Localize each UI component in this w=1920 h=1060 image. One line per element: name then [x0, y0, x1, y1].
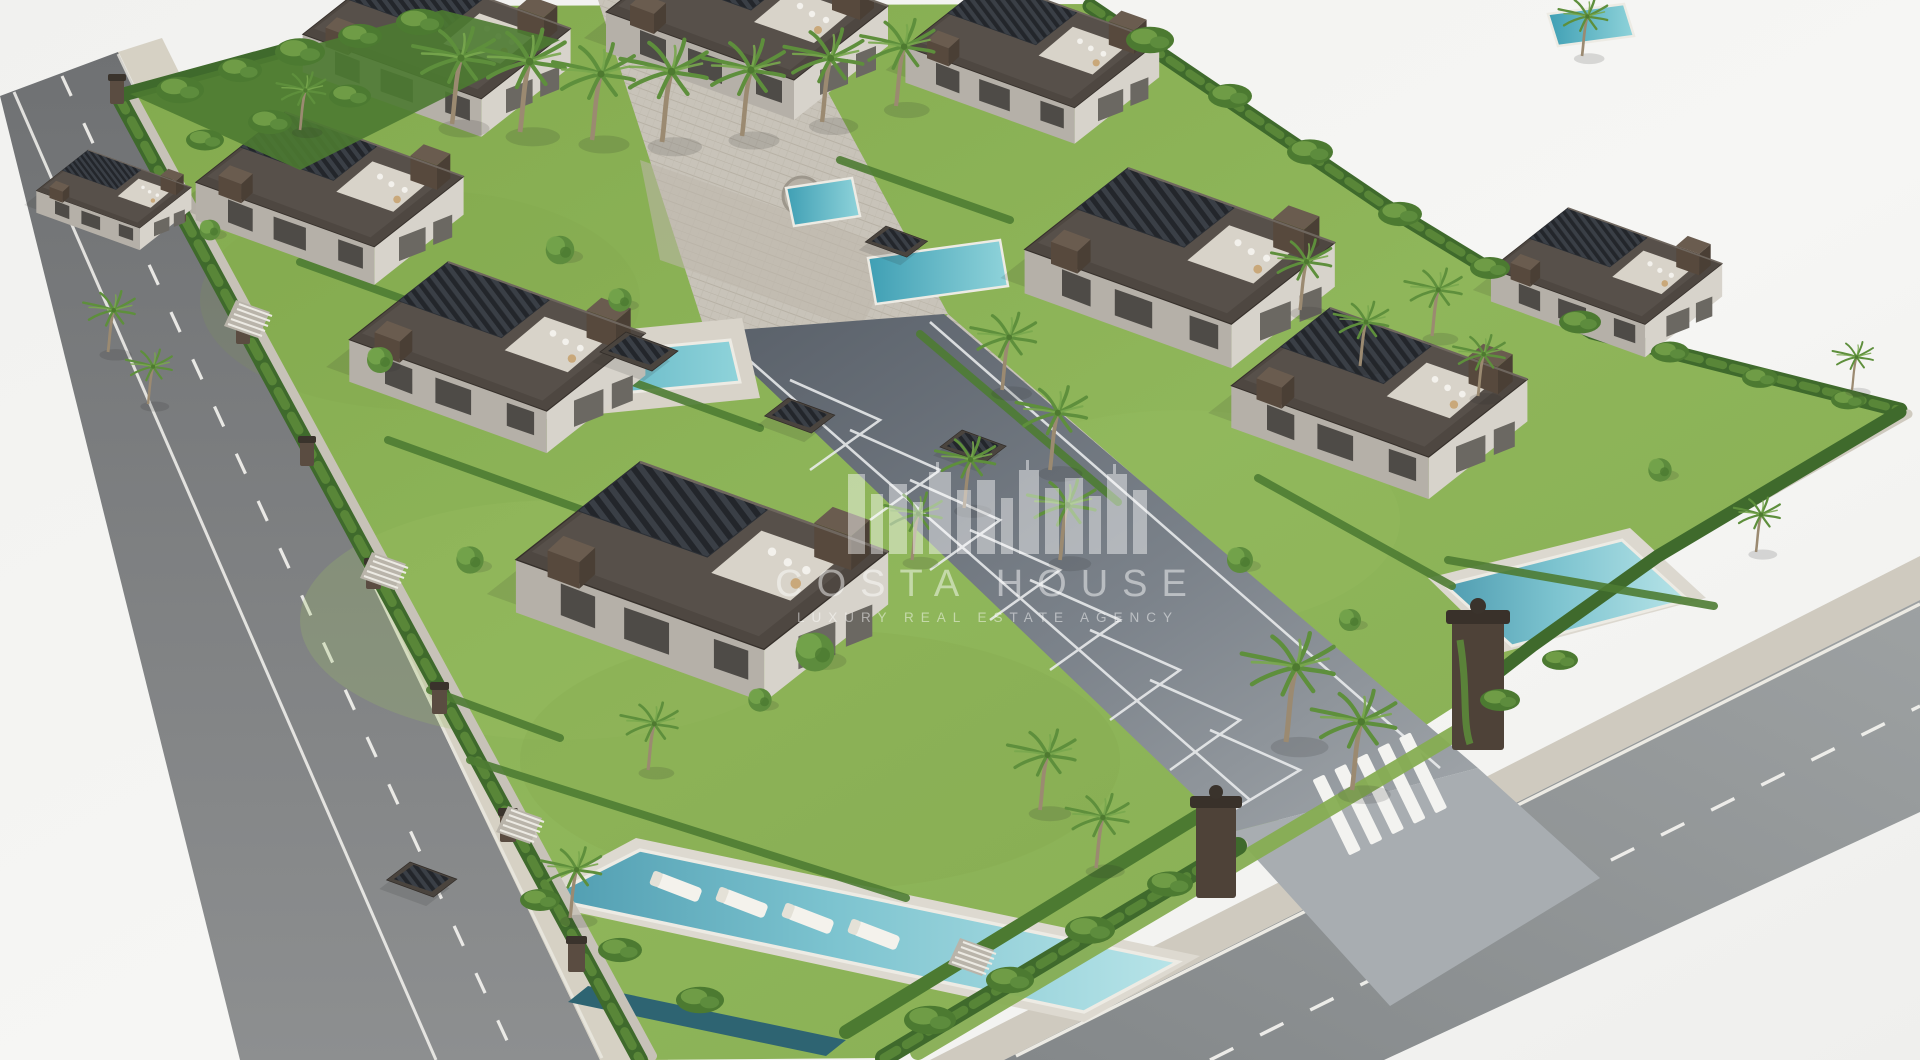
watermark-tagline-text: LUXURY REAL ESTATE AGENCY [797, 610, 1179, 625]
entrance-pillar-left [1196, 806, 1236, 898]
gate-lamp [1470, 598, 1486, 614]
watermark-brand-text: COSTA HOUSE [775, 563, 1201, 605]
entrance-pillar-right [1452, 620, 1504, 750]
gate-lamp [1209, 785, 1223, 799]
scene-canvas: COSTA HOUSE LUXURY REAL ESTATE AGENCY [0, 0, 1920, 1060]
lap-pool-terrace-a [786, 178, 860, 226]
aerial-render-villa-development: COSTA HOUSE LUXURY REAL ESTATE AGENCY [0, 0, 1920, 1060]
